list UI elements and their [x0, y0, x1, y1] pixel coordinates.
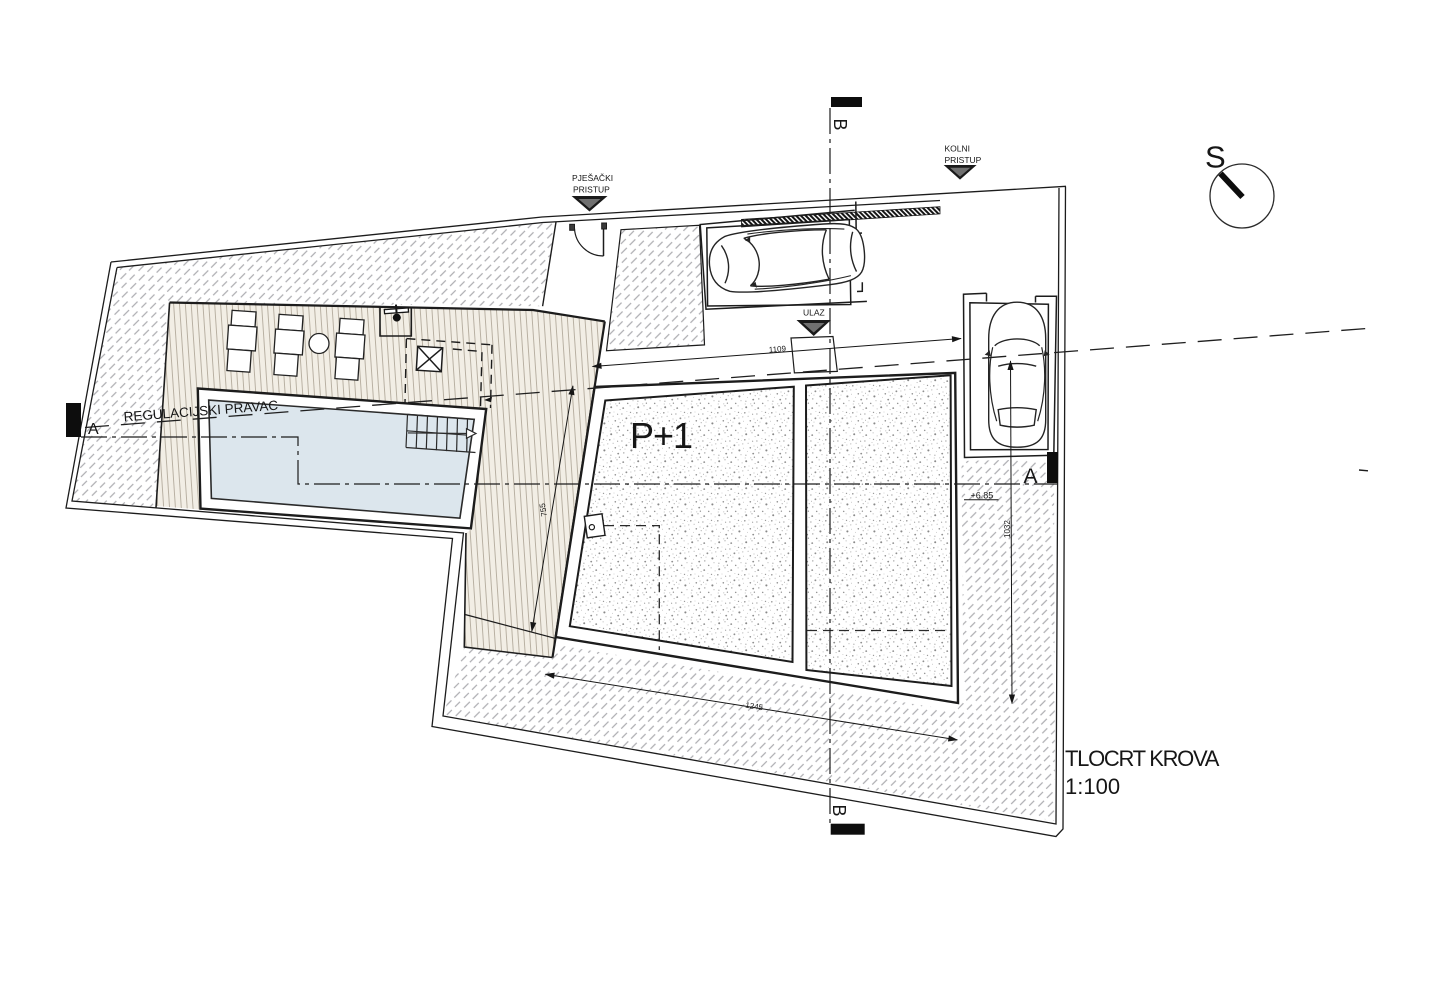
- svg-text:KOLNI: KOLNI: [945, 144, 971, 154]
- svg-text:PRISTUP: PRISTUP: [573, 185, 610, 195]
- svg-text:1032: 1032: [1003, 520, 1012, 538]
- svg-text:1109: 1109: [768, 344, 786, 354]
- svg-text:S: S: [1205, 140, 1226, 175]
- svg-text:A: A: [1024, 465, 1038, 488]
- svg-text:TLOCRT KROVA: TLOCRT KROVA: [1065, 746, 1220, 771]
- svg-text:ULAZ: ULAZ: [803, 308, 825, 318]
- svg-text:B: B: [830, 119, 850, 131]
- svg-text:P+1: P+1: [630, 415, 692, 456]
- svg-text:B: B: [829, 805, 849, 817]
- svg-text:PRISTUP: PRISTUP: [945, 155, 982, 165]
- svg-text:1:100: 1:100: [1065, 774, 1120, 799]
- svg-text:+6.85: +6.85: [971, 491, 994, 501]
- svg-text:A: A: [88, 421, 99, 438]
- svg-text:PJEŠAČKI: PJEŠAČKI: [572, 173, 613, 183]
